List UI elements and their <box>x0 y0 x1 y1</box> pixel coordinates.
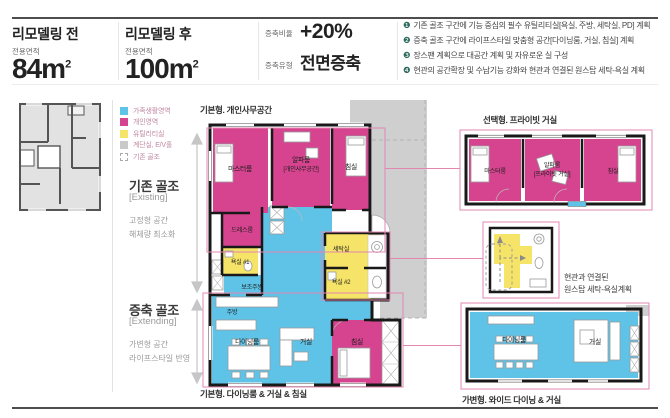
before-area-number: 84 <box>12 53 41 84</box>
room-label-living: 거실 <box>300 337 312 346</box>
room-label-alpha-use: [개인사무공간] <box>283 165 319 173</box>
extending-desc-1: 가변형 공간 <box>129 338 168 352</box>
note-1-text: 기존 골조 구간에 기능 중심의 필수 유틸리티실[욕실, 주방, 세탁실, P… <box>413 21 650 30</box>
note-3: ❸장스팬 계획으로 대공간 계획 및 자유로운 실 구성 <box>403 48 650 63</box>
before-area-unit: m <box>41 53 65 84</box>
room-label-kitchen: 주방 <box>227 308 238 316</box>
before-floor-plan <box>12 98 108 216</box>
room-label-bath2: 욕실 #2 <box>332 278 351 286</box>
stair-color-swatch <box>120 141 128 149</box>
existing-desc-2: 해체량 최소화 <box>129 228 175 242</box>
room-label-bath1: 욕실 #1 <box>231 258 250 266</box>
ext-type-label: 증축유형 <box>265 60 293 71</box>
before-area-value: 84m2 <box>12 55 70 83</box>
legend-item-stair: 계단실, E/V홀 <box>120 140 172 151</box>
utility-color-swatch <box>120 130 128 138</box>
legend-item-existing-frame: 기존 골조 <box>120 151 172 162</box>
before-title: 리모델링 전 <box>12 24 79 44</box>
after-area-number: 100 <box>125 53 169 84</box>
existing-subtitle: [Existing] <box>129 192 168 203</box>
private-floor-plan: 마스터룸 알파룸 [프라이빗 거실] 침실 <box>458 124 656 214</box>
legend-label-family: 가족생활영역 <box>133 106 170 116</box>
header-bottom-rule <box>12 84 658 85</box>
family-color-swatch <box>120 107 128 115</box>
remodeling-infographic: 리모델링 전 전용면적 84m2 리모델링 후 전용면적 100m2 증축비율 … <box>0 0 670 418</box>
personal-color-swatch <box>120 118 128 126</box>
room-label-subkitchen: 보조주방 <box>241 283 263 291</box>
room-label-bedroom-bottom: 침실 <box>351 337 363 346</box>
connector-wide <box>403 345 461 346</box>
onestop-note-line1: 현관과 연결된 <box>564 272 632 284</box>
note-2-text: 증축 골조 구간에 라이프스타일 맞춤형 공간[다이닝룸, 거실, 침실] 계획 <box>413 36 634 45</box>
extending-subtitle: [Extending] <box>129 316 177 327</box>
legend-item-utility: 유틸리티실 <box>120 128 172 139</box>
legend-label-existing-frame: 기존 골조 <box>133 152 160 162</box>
legend-item-personal: 개인영역 <box>120 117 172 128</box>
room-label-alpha: 알파룸 <box>292 155 310 164</box>
note-1-bullet-icon: ❶ <box>403 20 410 30</box>
connector-onestop <box>390 258 483 259</box>
after-title: 리모델링 후 <box>125 24 192 44</box>
wide-room-living: 거실 <box>589 337 601 346</box>
main-floor-plan: 마스터룸 알파룸 [개인사무공간] 침실 드레스룸 욕실 #1 보조주방 세탁실… <box>188 96 433 408</box>
legend-item-family: 가족생활영역 <box>120 105 172 116</box>
note-4-text: 현관의 공간확장 및 수납기능 강화와 현관과 연결된 원스탑 세탁-욕실 계획 <box>413 66 644 75</box>
note-3-text: 장스팬 계획으로 대공간 계획 및 자유로운 실 구성 <box>413 51 568 60</box>
room-label-dining: 다이닝룸 <box>235 337 259 346</box>
header-divider-2 <box>258 22 259 80</box>
header-divider-3 <box>397 22 398 80</box>
sidebar-divider <box>112 100 113 392</box>
room-label-bedroom-top: 침실 <box>345 162 357 171</box>
note-3-bullet-icon: ❸ <box>403 50 410 60</box>
private-room-alpha-use: [프라이빗 거실] <box>534 170 571 178</box>
onestop-note: 현관과 연결된 원스탑 세탁-욕실계획 <box>564 272 632 296</box>
private-room-alpha: 알파룸 <box>544 161 561 169</box>
wide-plan-caption: 가변형. 와이드 다이닝 & 거실 <box>462 394 561 406</box>
note-2: ❷증축 골조 구간에 라이프스타일 맞춤형 공간[다이닝룸, 거실, 침실] 계… <box>403 33 650 48</box>
note-2-bullet-icon: ❷ <box>403 35 410 45</box>
note-4-bullet-icon: ❹ <box>403 65 410 75</box>
connector-private <box>385 168 460 169</box>
after-area-sup: 2 <box>193 59 198 71</box>
legend-label-utility: 유틸리티실 <box>133 129 164 139</box>
existing-frame-swatch <box>120 153 128 161</box>
legend-label-personal: 개인영역 <box>133 117 158 127</box>
legend-label-stair: 계단실, E/V홀 <box>133 140 172 150</box>
room-label-master: 마스터룸 <box>228 164 252 173</box>
existing-desc-1: 고정형 공간 <box>129 214 168 228</box>
ratio-value: +20% <box>300 21 352 42</box>
onestop-note-line2: 원스탑 세탁-욕실계획 <box>564 284 632 296</box>
legend: 가족생활영역 개인영역 유틸리티실 계단실, E/V홀 기존 골조 <box>120 105 172 163</box>
ratio-label: 증축비율 <box>265 28 293 39</box>
note-1: ❶기존 골조 구간에 기능 중심의 필수 유틸리티실[욕실, 주방, 세탁실, … <box>403 18 650 33</box>
wide-floor-plan: 다이닝룸 거실 <box>458 298 654 394</box>
room-label-dress: 드레스룸 <box>231 226 253 234</box>
after-area-unit: m <box>169 53 193 84</box>
after-area-value: 100m2 <box>125 55 198 83</box>
onestop-floor-plan <box>480 218 562 302</box>
private-room-bedroom: 침실 <box>608 167 619 175</box>
note-4: ❹현관의 공간확장 및 수납기능 강화와 현관과 연결된 원스탑 세탁-욕실 계… <box>403 63 650 78</box>
wide-room-dining: 다이닝룸 <box>502 335 526 344</box>
extending-desc-2: 라이프스타일 반영 <box>129 352 190 366</box>
notes-list: ❶기존 골조 구간에 기능 중심의 필수 유틸리티실[욕실, 주방, 세탁실, … <box>403 18 650 78</box>
ext-type-value: 전면증축 <box>300 55 361 72</box>
header-divider-1 <box>118 22 119 80</box>
room-label-laundry: 세탁실 <box>333 245 350 253</box>
private-room-master: 마스터룸 <box>484 167 506 175</box>
before-area-sup: 2 <box>65 59 70 71</box>
